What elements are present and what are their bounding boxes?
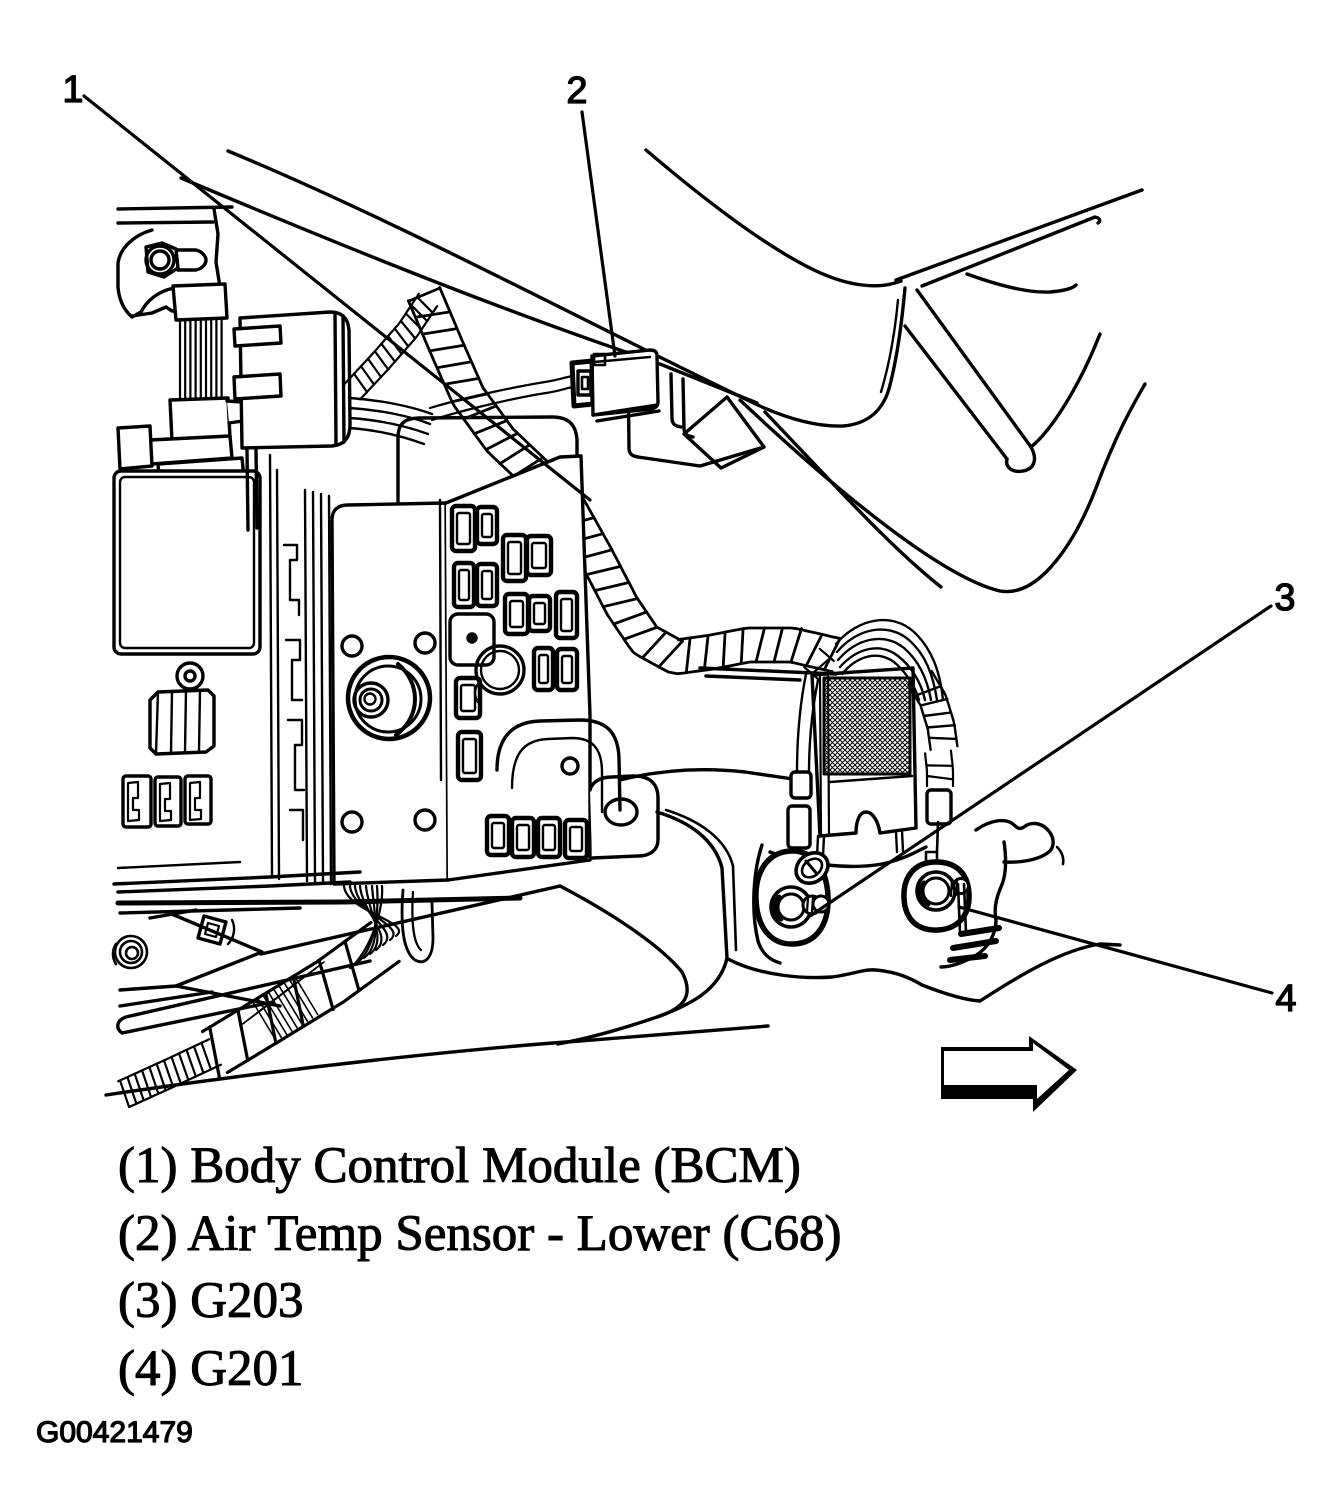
svg-text:1: 1 [62, 69, 83, 111]
svg-text:3: 3 [1274, 577, 1295, 619]
svg-text:(3) G203: (3) G203 [118, 1273, 304, 1329]
svg-text:2: 2 [566, 70, 587, 112]
svg-text:4: 4 [1275, 978, 1296, 1020]
svg-text:G00421479: G00421479 [36, 1416, 193, 1449]
svg-text:(1) Body Control Module (BCM): (1) Body Control Module (BCM) [118, 1138, 801, 1194]
svg-text:(4) G201: (4) G201 [118, 1341, 304, 1397]
svg-text:(2) Air Temp Sensor - Lower (C: (2) Air Temp Sensor - Lower (C68) [118, 1206, 842, 1262]
